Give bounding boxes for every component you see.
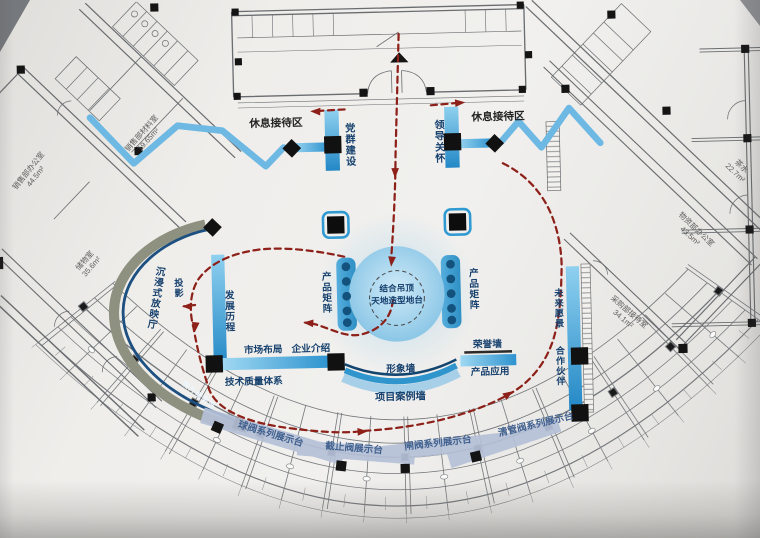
floor-plan-photo: 休息接待区 休息接待区 党群建设 领导关怀 结合吊顶 天地造型地台 产品矩阵 产… (0, 0, 760, 538)
zone-project-case-wall: 项目案例墙 (375, 391, 426, 404)
zone-company-intro: 企业介绍 (291, 344, 330, 356)
zone-partners: 合作伙伴 (554, 346, 565, 387)
zone-rest-left: 休息接待区 (249, 118, 303, 131)
zone-honor-wall: 荣誉墙 (473, 340, 502, 351)
platform-label-1: 结合吊顶 (379, 284, 414, 294)
zone-development-history: 发展历程 (222, 290, 234, 333)
zone-product-matrix-right: 产品矩阵 (466, 268, 478, 311)
photo-corner-shadow-tr (740, 0, 760, 26)
zone-leader-care: 领导关怀 (432, 119, 444, 164)
zone-tech-quality: 技术质量体系 (225, 377, 283, 389)
zone-product-matrix-left: 产品矩阵 (319, 271, 331, 314)
floor-plan: 休息接待区 休息接待区 党群建设 领导关怀 结合吊顶 天地造型地台 产品矩阵 产… (0, 0, 760, 538)
entrance-marker (390, 52, 409, 63)
zone-future-vision: 未来愿景 (553, 288, 564, 329)
zone-rest-right: 休息接待区 (471, 111, 525, 124)
photo-corner-shadow-tl (0, 0, 30, 52)
zone-image-wall: 形象墙 (386, 364, 415, 375)
zone-market-layout: 市场布局 (244, 345, 283, 357)
honor-wall-shapes (460, 350, 516, 367)
zone-party-building: 党群建设 (342, 122, 354, 167)
zone-projection: 投影 (173, 278, 184, 299)
partners-wall (566, 264, 594, 422)
zone-product-application: 产品应用 (471, 367, 510, 379)
floor-plan-drawing (0, 0, 760, 538)
wrapped-column-right (445, 209, 471, 235)
platform-label-2: 天地造型地台 (371, 296, 423, 307)
